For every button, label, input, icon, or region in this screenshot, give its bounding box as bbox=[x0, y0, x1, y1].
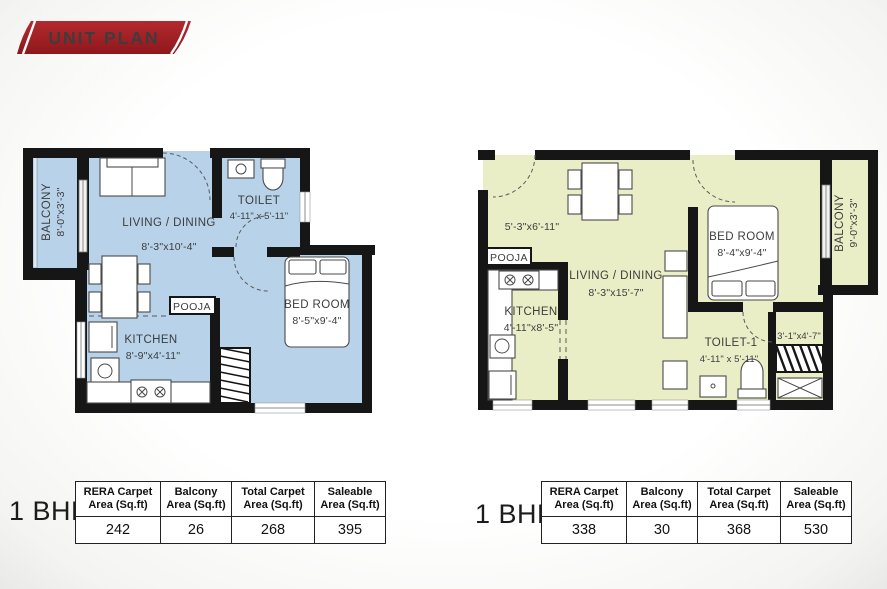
value-cell: 368 bbox=[698, 517, 781, 544]
value-cell: 242 bbox=[76, 517, 161, 544]
table-value-row: 338 30 368 530 bbox=[542, 517, 852, 544]
floor-plan-b: POOJA 5'-3"x6'-11" LIVING / DINING 8'-3"… bbox=[475, 133, 880, 425]
page-title: UNIT PLAN bbox=[48, 28, 159, 48]
toilet-dim: 4'-11" x 5'-11" bbox=[230, 211, 289, 222]
sofa-icon bbox=[100, 158, 165, 196]
value-cell: 30 bbox=[627, 517, 698, 544]
wc-icon bbox=[261, 159, 285, 190]
balcony-label: BALCONY bbox=[834, 194, 846, 252]
fridge-icon bbox=[489, 371, 516, 399]
value-cell: 268 bbox=[232, 517, 315, 544]
toilet-label: TOILET bbox=[238, 195, 280, 207]
header-cell: BalconyArea (Sq.ft) bbox=[161, 482, 232, 517]
value-cell: 395 bbox=[315, 517, 386, 544]
value-cell: 26 bbox=[161, 517, 232, 544]
kitchen-dim: 8'-9"x4'-11" bbox=[126, 350, 181, 362]
pooja-box: POOJA bbox=[487, 248, 531, 265]
pooja-label: POOJA bbox=[173, 301, 211, 313]
bedroom-label: BED ROOM bbox=[284, 299, 350, 311]
pooja-label: POOJA bbox=[490, 252, 528, 264]
living-label: LIVING / DINING bbox=[122, 217, 216, 229]
bedroom-dim: 8'-4"x9'-4" bbox=[717, 247, 766, 259]
sink-icon bbox=[490, 335, 515, 358]
pooja-box: POOJA bbox=[170, 297, 215, 314]
duct-box bbox=[778, 378, 822, 398]
header-cell: RERA CarpetArea (Sq.ft) bbox=[542, 482, 627, 517]
stove-icon bbox=[131, 380, 171, 403]
living-dim: 8'-3"x15'-7" bbox=[588, 287, 643, 299]
living-label: LIVING / DINING bbox=[569, 270, 663, 282]
kitchen-dim: 4'-11"x8'-5" bbox=[504, 322, 559, 334]
foyer-dim: 5'-3"x6'-11" bbox=[505, 221, 560, 233]
shaft-hatch bbox=[220, 348, 250, 403]
toilet-label: TOILET-1 bbox=[705, 337, 758, 349]
unit-plan-page: { "title": "UNIT PLAN", "colors": { "pla… bbox=[0, 0, 887, 589]
header-cell: Total CarpetArea (Sq.ft) bbox=[698, 482, 781, 517]
header-cell: BalconyArea (Sq.ft) bbox=[627, 482, 698, 517]
area-table-a: RERA CarpetArea (Sq.ft) BalconyArea (Sq.… bbox=[75, 481, 386, 544]
table-header-row: RERA CarpetArea (Sq.ft) BalconyArea (Sq.… bbox=[542, 482, 852, 517]
value-cell: 338 bbox=[542, 517, 627, 544]
wash-basin-icon bbox=[700, 376, 726, 397]
sink-icon bbox=[91, 358, 119, 384]
header-cell: Total CarpetArea (Sq.ft) bbox=[232, 482, 315, 517]
kitchen-label: KITCHEN bbox=[124, 334, 177, 346]
table-value-row: 242 26 268 395 bbox=[76, 517, 386, 544]
ledge-hatch bbox=[776, 345, 823, 372]
kitchen-label: KITCHEN bbox=[504, 306, 557, 318]
area-table-b: RERA CarpetArea (Sq.ft) BalconyArea (Sq.… bbox=[541, 481, 852, 544]
wash-basin-icon bbox=[228, 160, 254, 178]
header-cell: SaleableArea (Sq.ft) bbox=[315, 482, 386, 517]
floor-plan-a: POOJA BALCONY 8'-0"x3'-3" LIVING / DININ… bbox=[23, 146, 375, 418]
balcony-label: BALCONY bbox=[41, 183, 53, 241]
header-cell: RERA CarpetArea (Sq.ft) bbox=[76, 482, 161, 517]
stove-icon bbox=[499, 271, 539, 289]
fridge-icon bbox=[89, 322, 117, 352]
balcony-dim: 9'-0"x3'-3" bbox=[848, 198, 860, 247]
bedroom-dim: 8'-5"x9'-4" bbox=[292, 315, 341, 327]
value-cell: 530 bbox=[781, 517, 852, 544]
toilet-dim: 4'-11" x 5'-11" bbox=[700, 354, 759, 365]
balcony-railing bbox=[33, 156, 37, 268]
balcony-dim: 8'-0"x3'-3" bbox=[55, 187, 67, 236]
ledge-dim: 3'-1"x4'-7" bbox=[777, 331, 821, 342]
header-cell: SaleableArea (Sq.ft) bbox=[781, 482, 852, 517]
unit-plan-ribbon: UNIT PLAN bbox=[14, 18, 196, 58]
table-header-row: RERA CarpetArea (Sq.ft) BalconyArea (Sq.… bbox=[76, 482, 386, 517]
living-dim: 8'-3"x10'-4" bbox=[141, 241, 196, 253]
bedroom-label: BED ROOM bbox=[709, 231, 775, 243]
